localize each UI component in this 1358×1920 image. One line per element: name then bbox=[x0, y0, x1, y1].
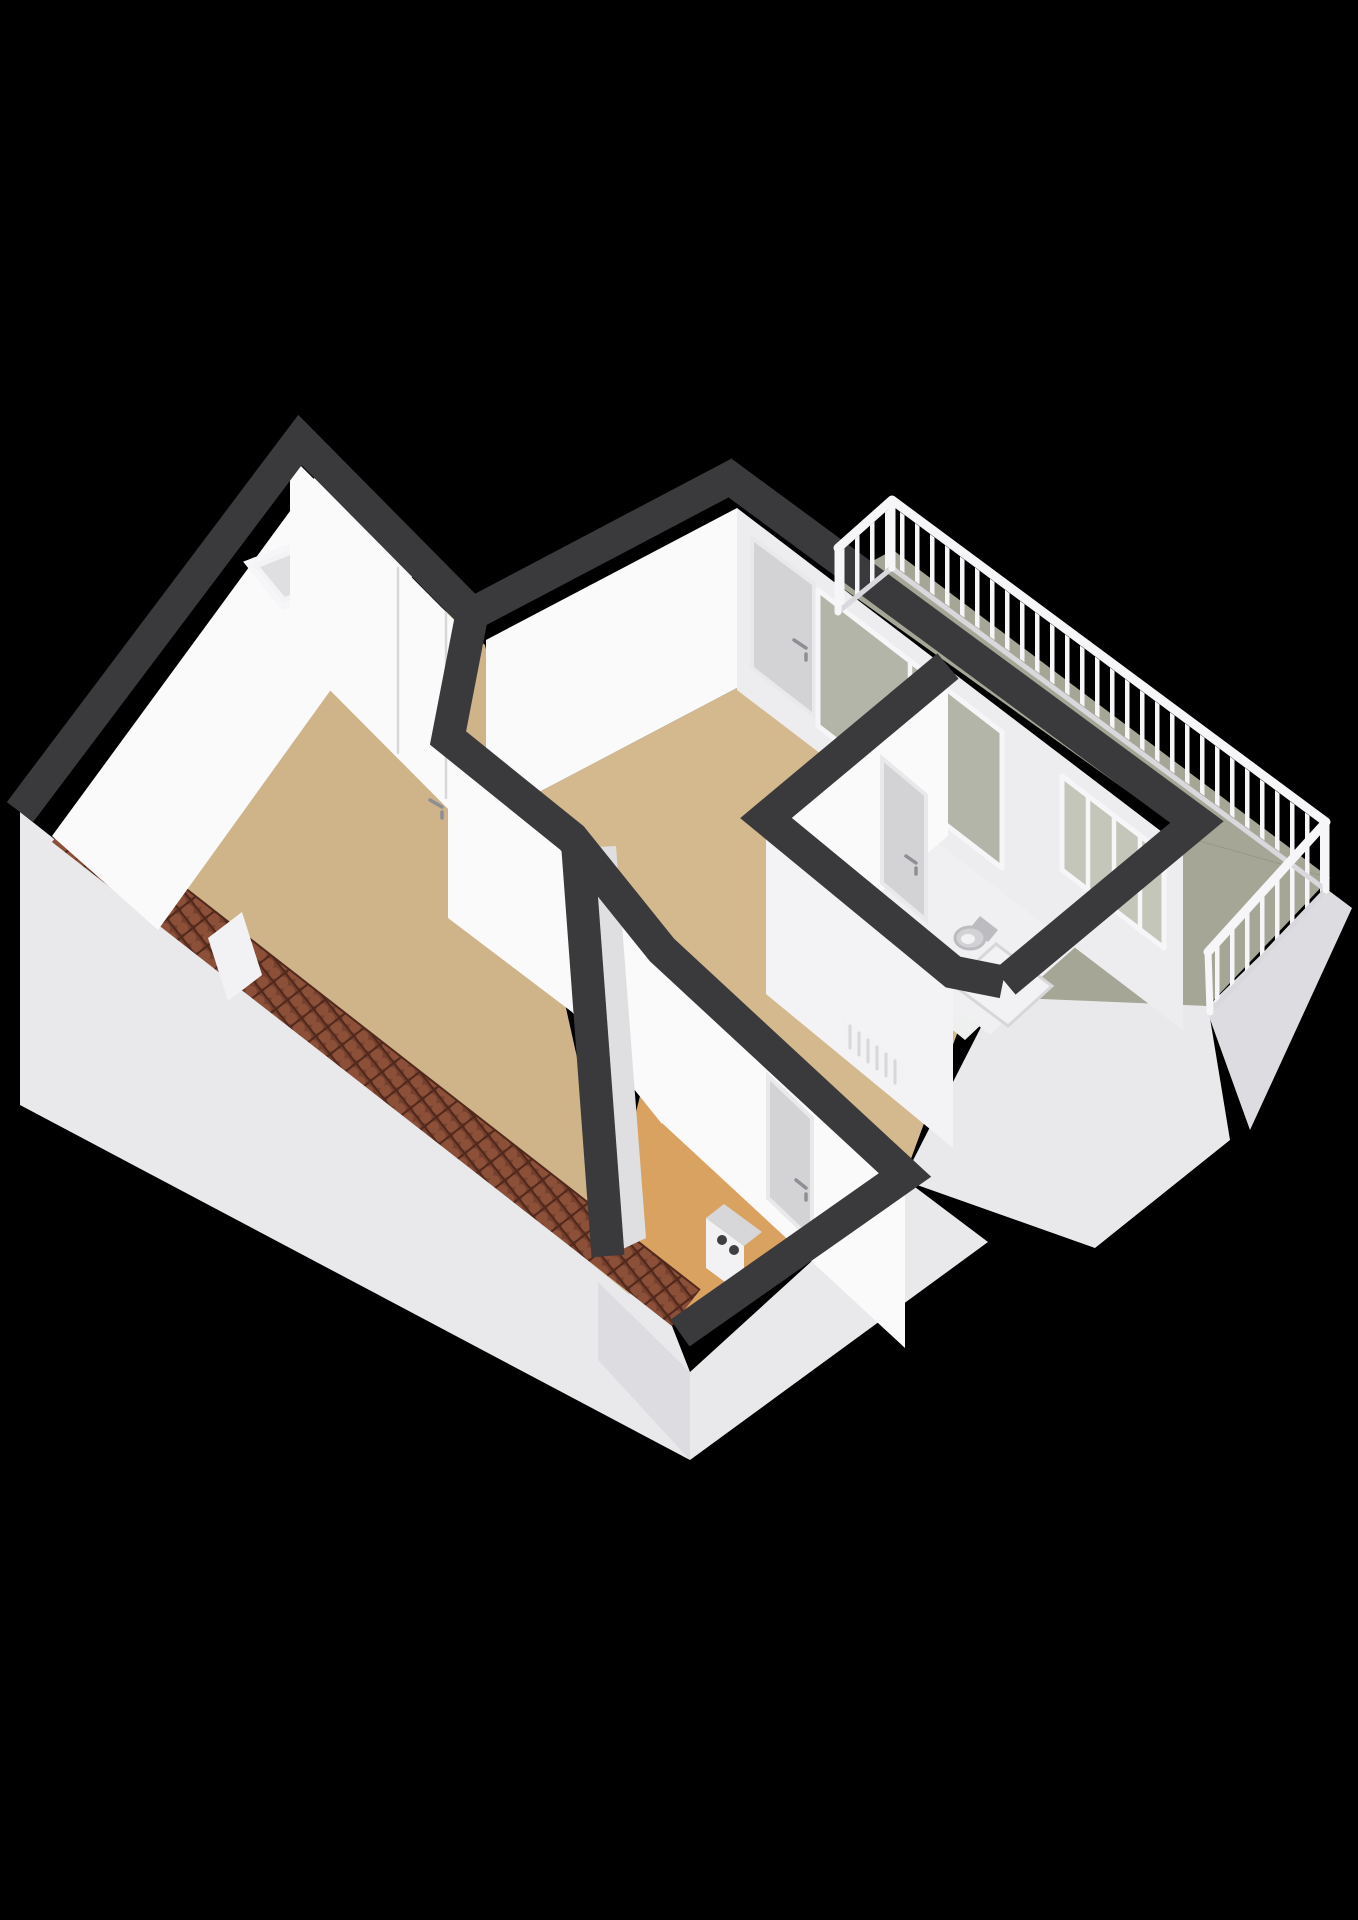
toilet-seat bbox=[961, 934, 975, 944]
boiler-dial-1 bbox=[717, 1235, 727, 1245]
floorplan-canvas bbox=[0, 0, 1358, 1920]
floorplan-3d-render bbox=[0, 0, 1358, 1920]
railing-post-south-end bbox=[1208, 952, 1210, 1012]
boiler-dial-2 bbox=[729, 1245, 739, 1255]
